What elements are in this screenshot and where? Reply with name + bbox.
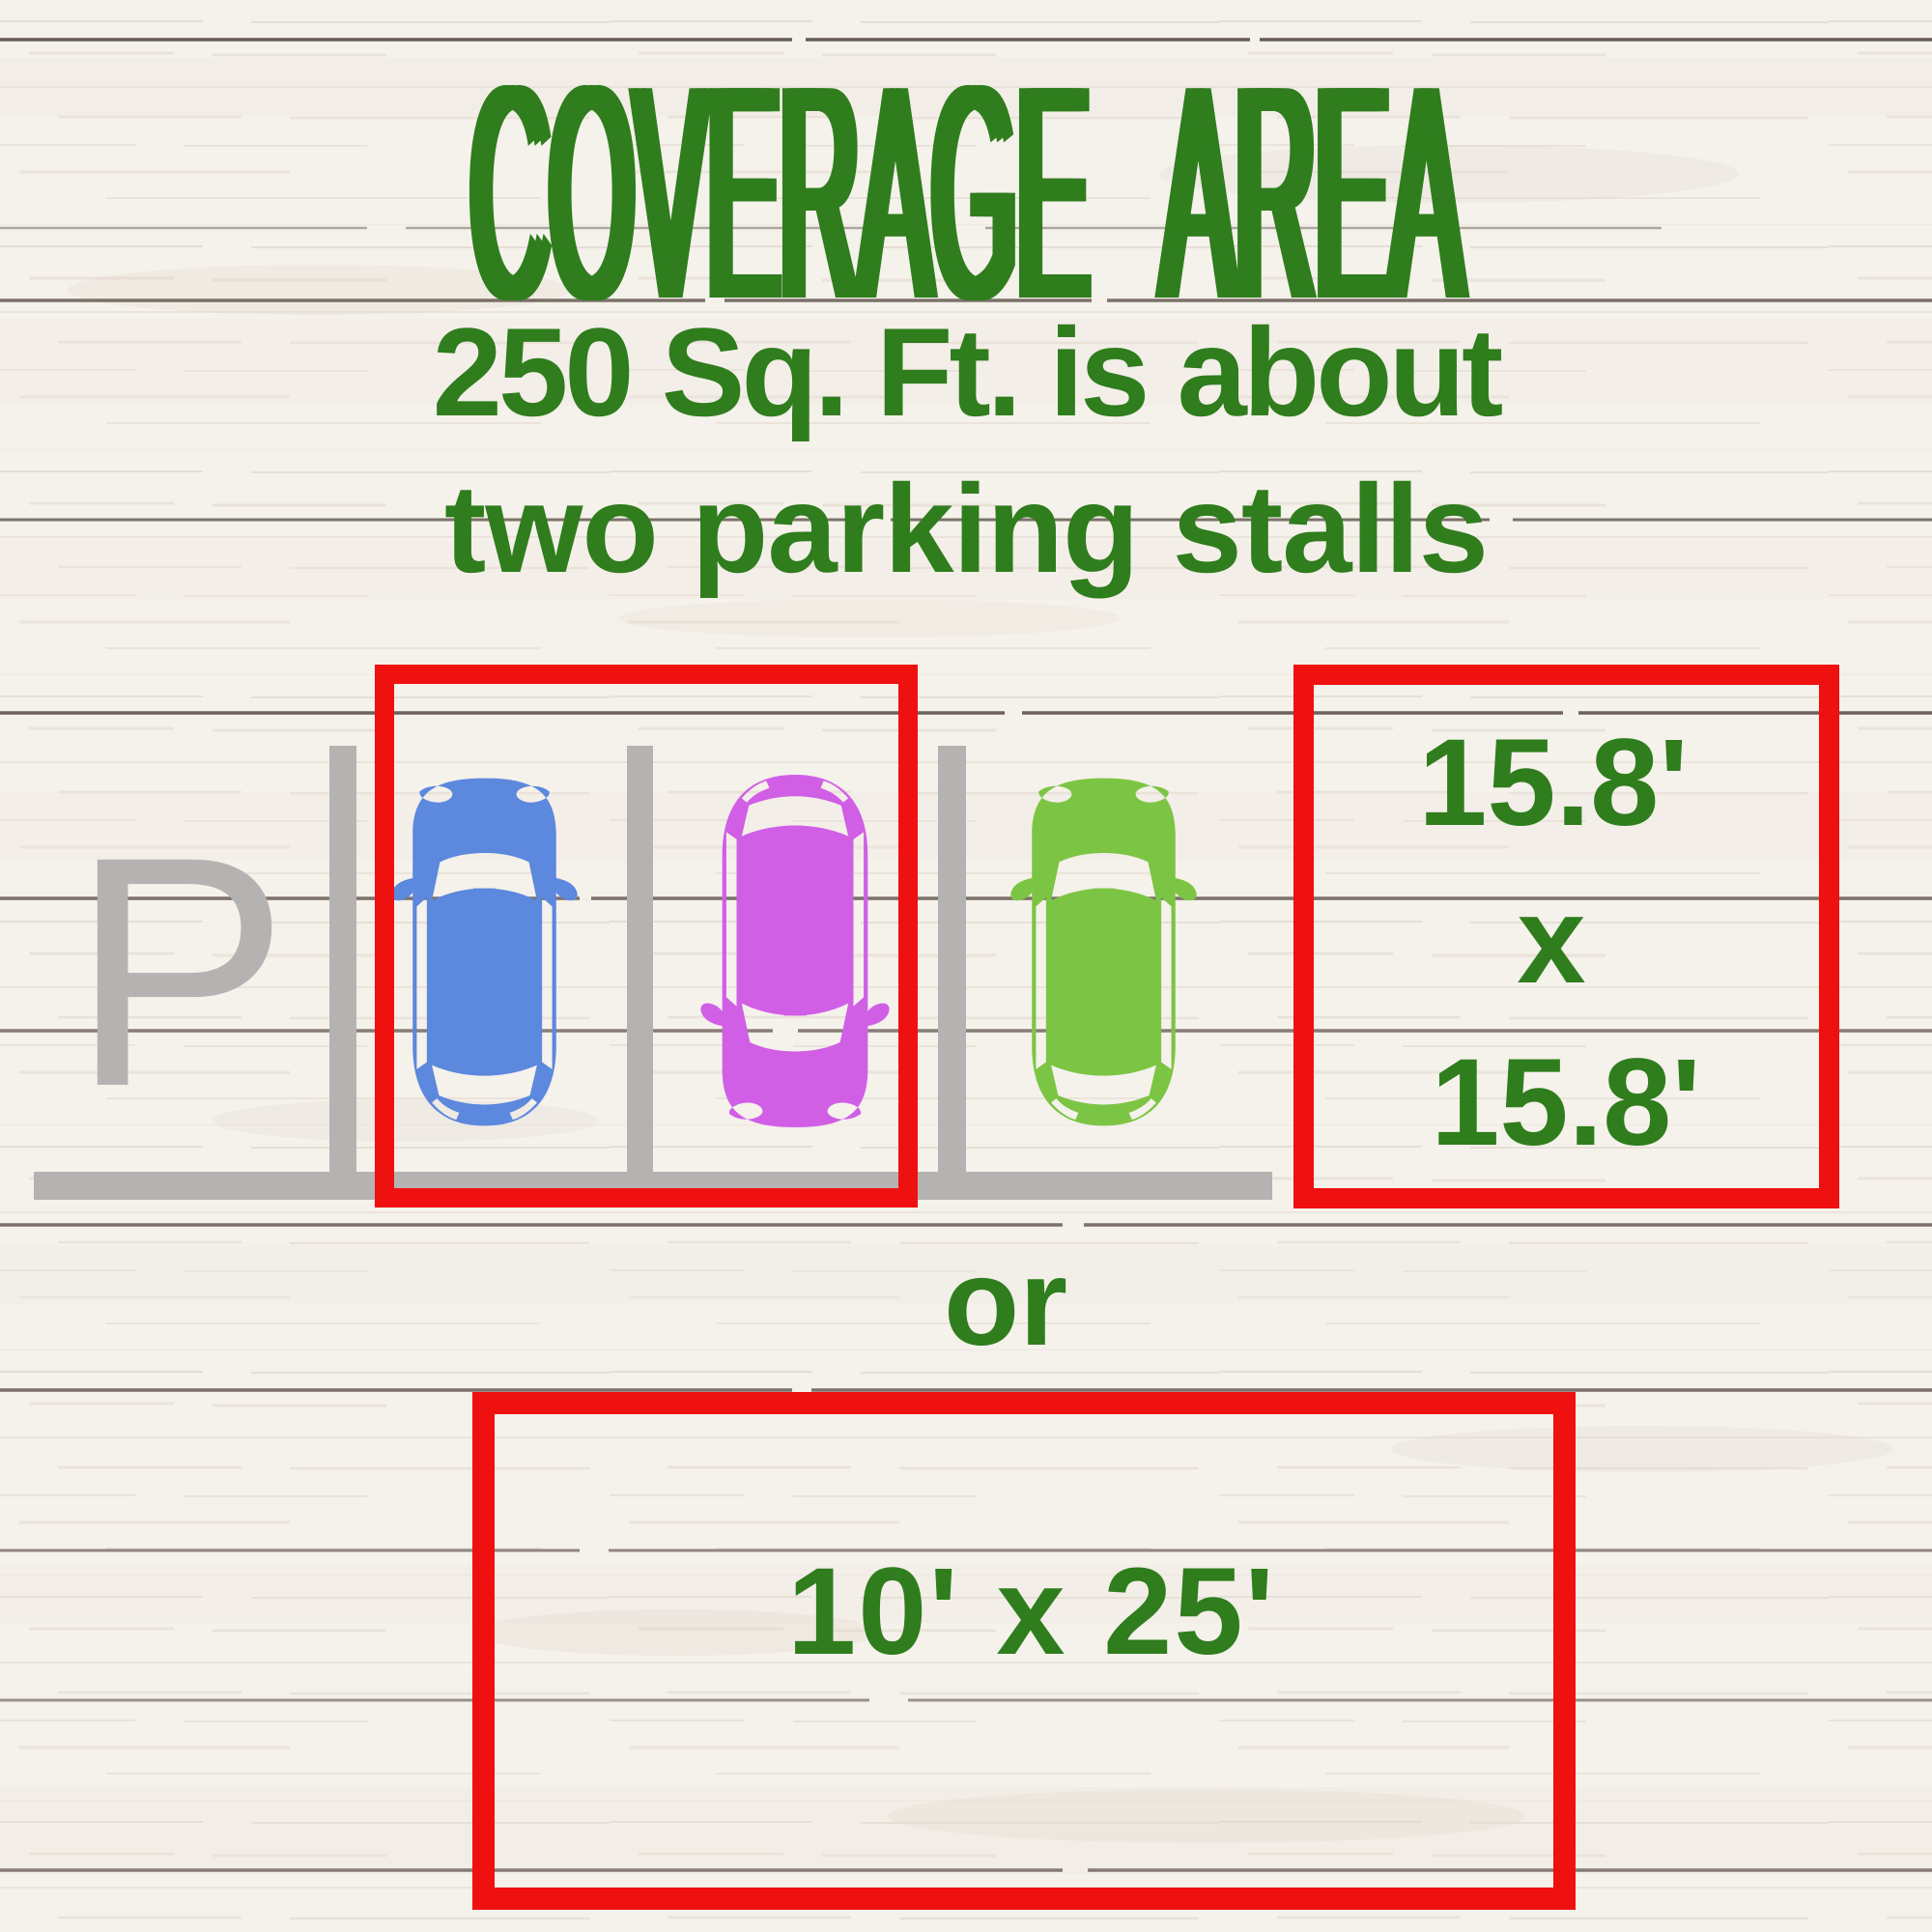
svg-text:P: P xyxy=(71,788,289,1154)
svg-text:x: x xyxy=(1517,871,1585,1009)
svg-text:15.8': 15.8' xyxy=(1431,1034,1701,1172)
svg-text:two parking stalls: two parking stalls xyxy=(444,458,1488,599)
svg-text:or: or xyxy=(944,1234,1067,1372)
svg-text:15.8': 15.8' xyxy=(1418,714,1689,852)
svg-text:10' x 25': 10' x 25' xyxy=(787,1543,1276,1681)
svg-text:250 Sq. Ft. is about: 250 Sq. Ft. is about xyxy=(433,301,1502,442)
